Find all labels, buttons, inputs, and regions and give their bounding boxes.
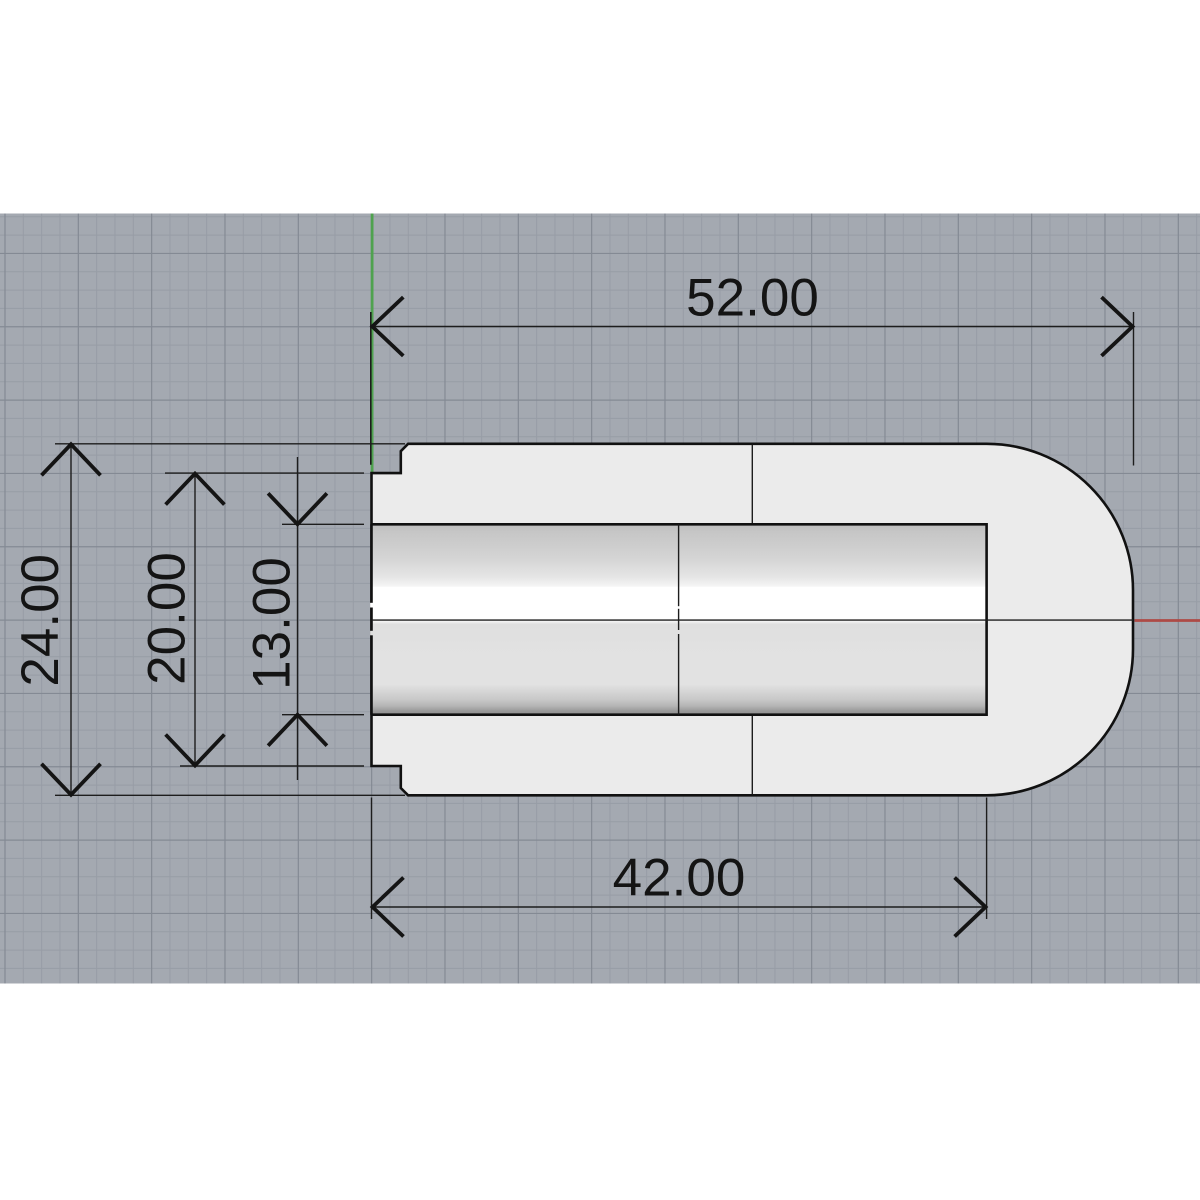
svg-text:24.00: 24.00 [11,554,70,687]
svg-text:13.00: 13.00 [243,557,302,690]
svg-text:42.00: 42.00 [613,849,746,908]
svg-text:52.00: 52.00 [686,269,819,328]
svg-text:20.00: 20.00 [138,552,197,685]
